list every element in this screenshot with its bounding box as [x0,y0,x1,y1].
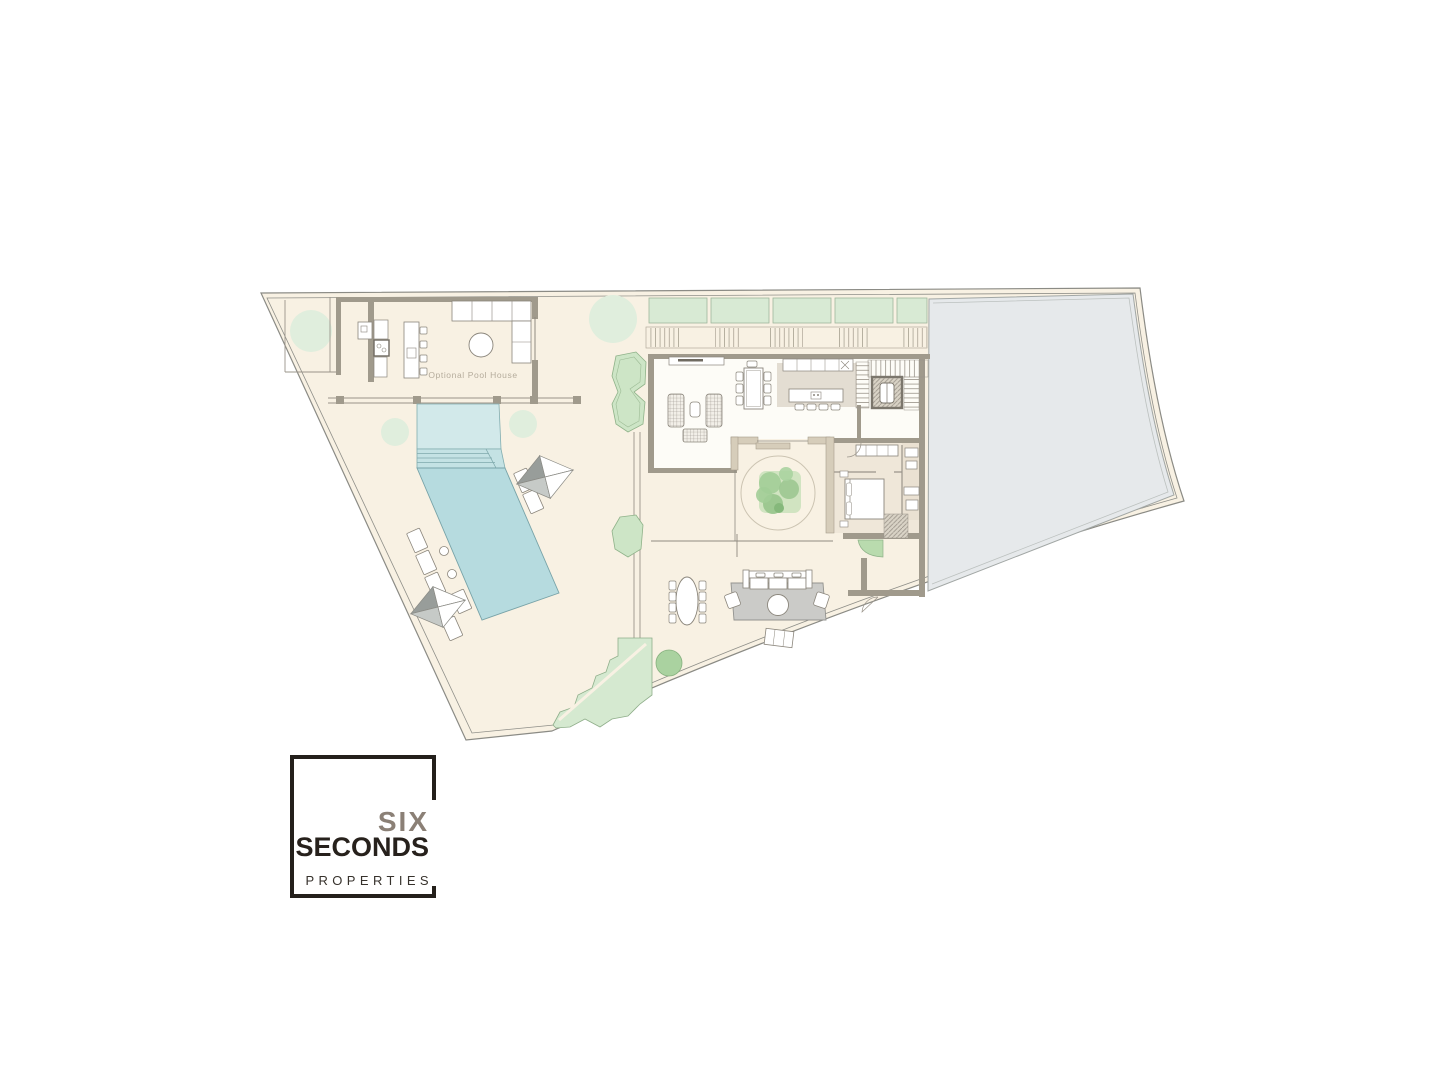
armchair-icon [668,394,684,427]
stool-icon [420,341,427,348]
floor-plan-svg: Optional Pool House [0,0,1440,1080]
stool-icon [831,404,840,410]
pillow-icon [847,502,852,515]
pillow-icon [847,483,852,496]
sofa-icon [743,570,812,589]
exterior-stairs [884,514,908,538]
side-table-icon [440,547,449,556]
logo-border-right-upper [432,755,436,800]
pool-house-island [404,322,419,378]
six-seconds-properties-logo: SIX SECONDS PROPERTIES [290,755,436,898]
deck-slats [648,328,680,347]
bush-icon [656,650,682,676]
neighbor-parcel [928,294,1174,591]
side-table-icon [448,570,457,579]
armchair-icon [706,394,722,427]
chair-icon [764,396,771,405]
tree-icon [779,479,799,499]
planter-box [897,298,927,323]
planter-box [649,298,707,323]
deck-slats [715,328,740,347]
sofa-icon [452,301,531,321]
pool-shallow [417,404,501,449]
chair-icon [764,372,771,381]
deck-slats [837,328,870,347]
pool-house-label: Optional Pool House [428,370,517,380]
nightstand [840,471,848,477]
pool-house-right-wall [532,360,538,398]
pillar [336,396,344,404]
staircase [856,360,928,410]
logo-border-bottom [290,894,436,898]
pool-house-stove [374,340,389,356]
toilet-icon [905,448,918,457]
logo-word-seconds: SECONDS [295,834,429,861]
stool-icon [420,327,427,334]
stool-icon [819,404,828,410]
shower-icon [906,500,918,510]
tree-icon [589,295,637,343]
pool-steps [417,449,505,468]
faucet-icon [817,394,819,396]
pillar [493,396,501,404]
nightstand [840,521,848,527]
wall [857,405,861,443]
dining-table-oval [676,577,698,625]
planter-box [711,298,769,323]
page: Optional Pool House [0,0,1440,1080]
pool-house-left-wall [336,297,341,375]
tree-icon [509,410,537,438]
bench-icon [683,429,707,442]
pool-house-right-pillar [532,297,538,319]
chair-icon [747,361,757,367]
stool-icon [420,355,427,362]
stool-icon [795,404,804,410]
neighbor-area [928,294,1174,591]
stool-icon [807,404,816,410]
sink-icon [904,487,919,495]
logo-word-properties: PROPERTIES [305,874,433,887]
pillar [573,396,581,404]
north-planters [649,298,927,323]
tree-icon [774,503,784,513]
chair-icon [736,396,743,405]
pillar [530,396,538,404]
tv-bench [764,628,794,647]
planter-box [835,298,893,323]
wall [861,558,867,592]
deck-slats [770,328,803,347]
logo-border-left [290,755,294,898]
pillar [413,396,421,404]
round-table-icon [469,333,493,357]
planter-box [773,298,831,323]
wall [648,468,737,473]
tree-icon [756,487,772,503]
bidet-icon [906,461,917,469]
wall [848,590,925,596]
pool-house-fridge [358,322,372,339]
tree-icon [381,418,409,446]
tree-icon [290,310,332,352]
dining-table [744,368,763,409]
tree-icon [779,467,793,481]
stair-treads [868,360,928,377]
side-table-icon [690,402,700,417]
kitchen-island [789,389,843,402]
pool-house-cabinet [374,320,388,339]
stair-treads [856,362,869,408]
console-detail [678,359,703,362]
courtyard [741,456,815,530]
logo-border-top [290,755,436,759]
stair-treads [904,377,919,410]
chair-icon [736,384,743,393]
wall [834,438,923,443]
pool-house-cabinet [374,357,387,377]
chair-icon [736,372,743,381]
pool-house-kitchen-wall [368,298,374,382]
wall [648,354,654,473]
deck-slats [903,328,927,347]
stool-icon [420,368,427,375]
wall [919,354,925,597]
interior-floor [651,439,737,470]
faucet-icon [813,394,815,396]
coffee-table-icon [768,595,789,616]
chair-icon [764,384,771,393]
kitchen-counter [783,359,853,371]
